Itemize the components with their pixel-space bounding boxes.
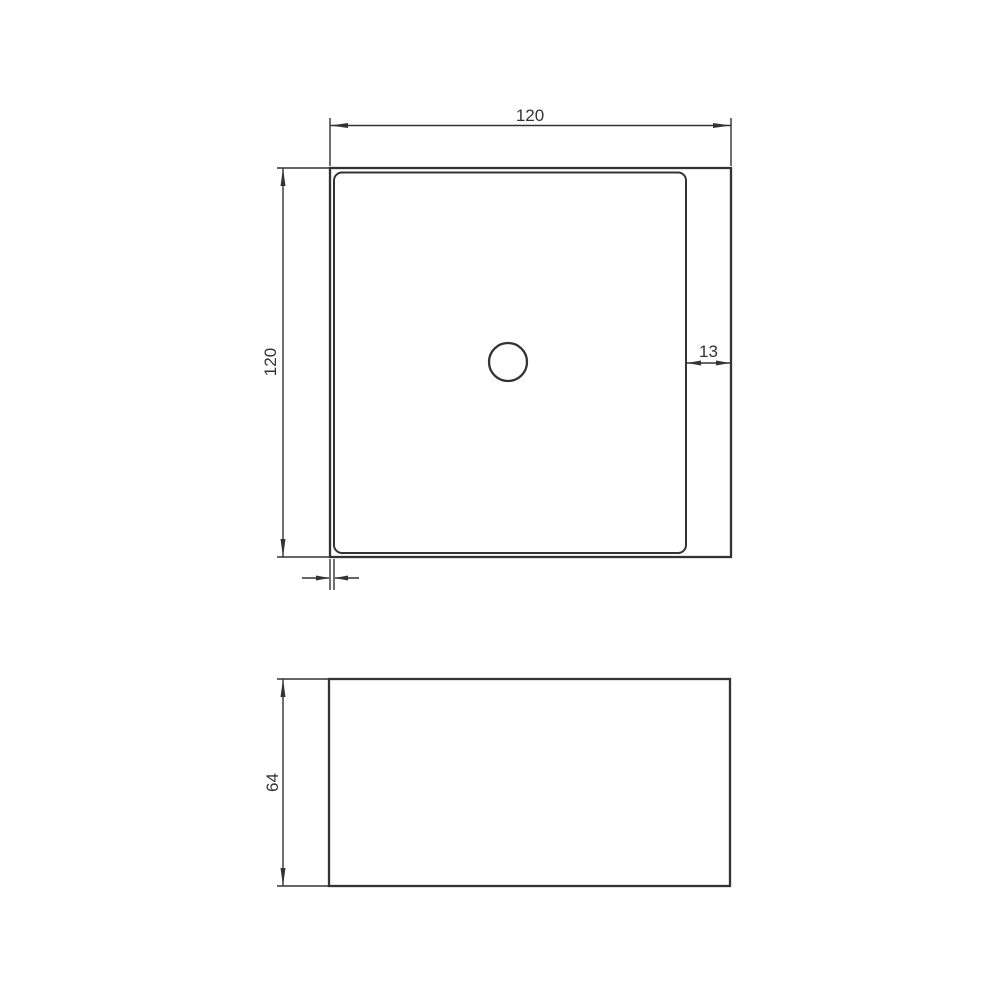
top-view-outer-edge	[330, 168, 731, 557]
front-view-outline	[329, 679, 730, 886]
dim-arrow-down	[281, 868, 286, 886]
dim-arrow-left	[330, 123, 348, 128]
dim-arrow-right	[316, 576, 330, 581]
technical-drawing-canvas: 120 120 13	[0, 0, 1000, 1000]
dim-left-height: 120	[261, 168, 330, 557]
technical-drawing-page: 120 120 13	[0, 0, 1000, 1000]
dim-arrow-left	[335, 576, 349, 581]
drain-hole-circle	[489, 343, 527, 381]
front-view	[329, 679, 730, 886]
dim-arrow-up	[281, 168, 286, 186]
dim-top-width-label: 120	[516, 106, 544, 125]
dim-rim-gap-right: 13	[687, 342, 730, 366]
dim-arrow-left	[687, 361, 701, 366]
dim-front-height: 64	[263, 679, 329, 886]
dim-arrow-up	[281, 679, 286, 697]
dim-top-width: 120	[330, 106, 731, 166]
top-view	[330, 168, 731, 557]
dim-arrow-right	[713, 123, 731, 128]
top-view-basin-inner-edge	[334, 173, 686, 554]
dim-arrow-down	[281, 539, 286, 557]
dim-front-height-label: 64	[263, 773, 282, 792]
dim-wall-thickness-left	[302, 559, 359, 590]
dim-rim-gap-label: 13	[699, 342, 718, 361]
dim-left-height-label: 120	[261, 348, 280, 376]
dim-arrow-right	[716, 361, 730, 366]
